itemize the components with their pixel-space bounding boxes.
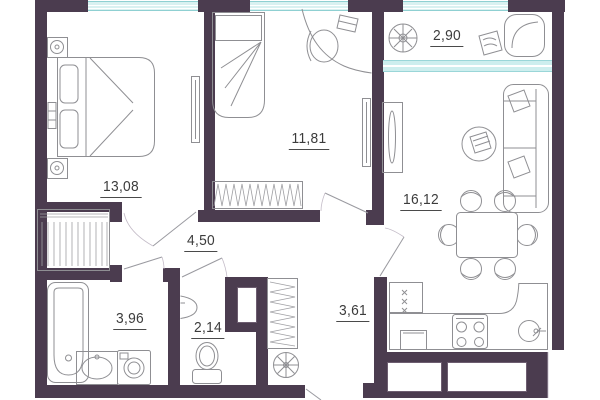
room-area-bathroom: 3,96 — [113, 311, 146, 330]
nightstand-top — [48, 38, 68, 58]
room-area-living: 16,12 — [400, 192, 441, 211]
side-table-living — [462, 127, 496, 161]
washing-machine — [118, 351, 151, 385]
furniture-layer — [0, 0, 600, 400]
dishwasher — [401, 331, 427, 350]
desk — [302, 9, 372, 73]
kitchen-tall-cabinet — [390, 283, 423, 314]
wardrobe-room2 — [213, 182, 303, 209]
hall-fan — [274, 353, 299, 378]
balcony-plant — [389, 24, 417, 52]
tv-cabinet-living — [383, 103, 403, 173]
dresser-bedroom — [192, 77, 200, 143]
door-bathroom — [124, 257, 164, 269]
double-bed — [58, 58, 155, 157]
door-room2 — [321, 193, 368, 213]
door-living — [380, 228, 404, 276]
nightstand-bottom — [48, 159, 68, 179]
room-area-corridor: 4,50 — [184, 233, 217, 252]
balcony-cushion — [479, 31, 502, 55]
toilet — [193, 343, 222, 384]
room-area-room2: 11,81 — [289, 131, 329, 150]
single-bed — [213, 13, 265, 118]
room-area-wc: 2,14 — [191, 320, 224, 339]
wardrobe-bedroom — [38, 210, 110, 271]
dining-table — [457, 213, 518, 258]
room-area-bedroom: 13,08 — [100, 179, 141, 198]
door-wc — [182, 258, 227, 277]
hall-wardrobe — [268, 279, 298, 349]
room-area-balcony: 2,90 — [430, 28, 463, 47]
kitchen-sink — [519, 321, 547, 342]
laptop — [337, 15, 358, 32]
wc-corner-sink — [181, 296, 198, 319]
room-area-hall: 3,61 — [336, 303, 369, 322]
door-entrance — [306, 389, 321, 400]
stove — [453, 315, 488, 349]
radiator-room2 — [363, 99, 371, 167]
balcony-chair — [505, 15, 545, 57]
floor-plan: 13,08 11,81 2,90 16,12 4,50 3,96 2,14 3,… — [0, 0, 600, 400]
radiator-bedroom — [48, 103, 56, 129]
